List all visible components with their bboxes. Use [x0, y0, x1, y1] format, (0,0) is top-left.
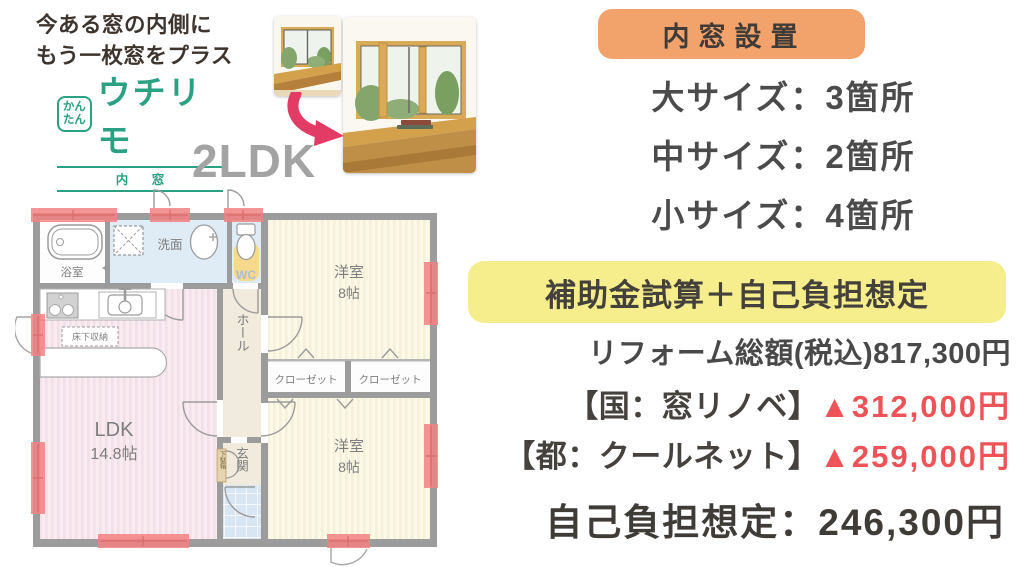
- after-photo: [343, 17, 476, 173]
- subsidy-estimate-badge: 補助金試算＋自己負担想定: [468, 261, 1006, 323]
- label-bedroom2: 洋室: [334, 438, 364, 455]
- label-genkan: 玄関: [234, 446, 248, 473]
- size-line-large: 大サイズ：3箇所: [560, 68, 1007, 127]
- label-closet2: クローゼット: [359, 374, 422, 386]
- label-bedroom1-size: 8帖: [338, 285, 360, 301]
- subsidy-label-national: 【国：窓リノベ】: [567, 389, 819, 424]
- label-bath: 浴室: [61, 265, 84, 279]
- label-shoebox: 下駄箱: [219, 451, 226, 470]
- window-size-list: 大サイズ：3箇所 中サイズ：2箇所 小サイズ：4箇所: [560, 68, 1007, 245]
- kantan-badge: かんたん: [57, 96, 92, 132]
- self-pay-line: 自己負担想定：246,300円: [545, 492, 1005, 546]
- tagline-line1: 今ある窓の内側に: [36, 10, 233, 41]
- floorplan: 浴室 洗面 WC 洋室 8帖 クローゼット クローゼット 洋室 8帖 LDK 1…: [15, 185, 465, 567]
- label-bedroom1: 洋室: [334, 264, 364, 281]
- label-closet1: クローゼット: [275, 374, 338, 386]
- tagline: 今ある窓の内側に もう一枚窓をプラス: [36, 10, 233, 72]
- size-line-medium: 中サイズ：2箇所: [560, 127, 1007, 186]
- flyer-page: { "header": { "tagline_line1": "今ある窓の内側に…: [0, 0, 1017, 567]
- before-after-arrow: [286, 92, 352, 146]
- subsidy-row-national: 【国：窓リノベ】▲312,000円: [567, 381, 1011, 426]
- genkan-tile-floor: [223, 485, 261, 539]
- label-floor-storage: 床下収納: [72, 331, 108, 342]
- label-ldk: LDK: [95, 419, 135, 441]
- label-bedroom2-size: 8帖: [338, 459, 360, 475]
- label-hall: ホール: [235, 313, 250, 352]
- subsidy-amount-national: ▲312,000円: [819, 389, 1011, 424]
- room-ldk-floor: [40, 289, 217, 539]
- before-photo: [274, 16, 341, 96]
- hall-floor: [223, 289, 261, 437]
- label-washroom: 洗面: [157, 238, 182, 252]
- label-wc: WC: [236, 268, 256, 282]
- subsidy-label-tokyo: 【都：クールネット】: [504, 439, 819, 474]
- subsidy-amount-tokyo: ▲259,000円: [819, 439, 1011, 474]
- after-photo-art: [343, 17, 476, 173]
- subsidy-row-tokyo: 【都：クールネット】▲259,000円: [504, 431, 1011, 476]
- label-ldk-size: 14.8帖: [90, 445, 137, 463]
- renovation-total-line: リフォーム総額(税込)817,300円: [588, 330, 1011, 372]
- island-counter: [40, 348, 166, 377]
- before-photo-art: [274, 16, 341, 96]
- size-line-small: 小サイズ：4箇所: [560, 186, 1007, 245]
- inner-window-install-badge: 内窓設置: [598, 9, 865, 59]
